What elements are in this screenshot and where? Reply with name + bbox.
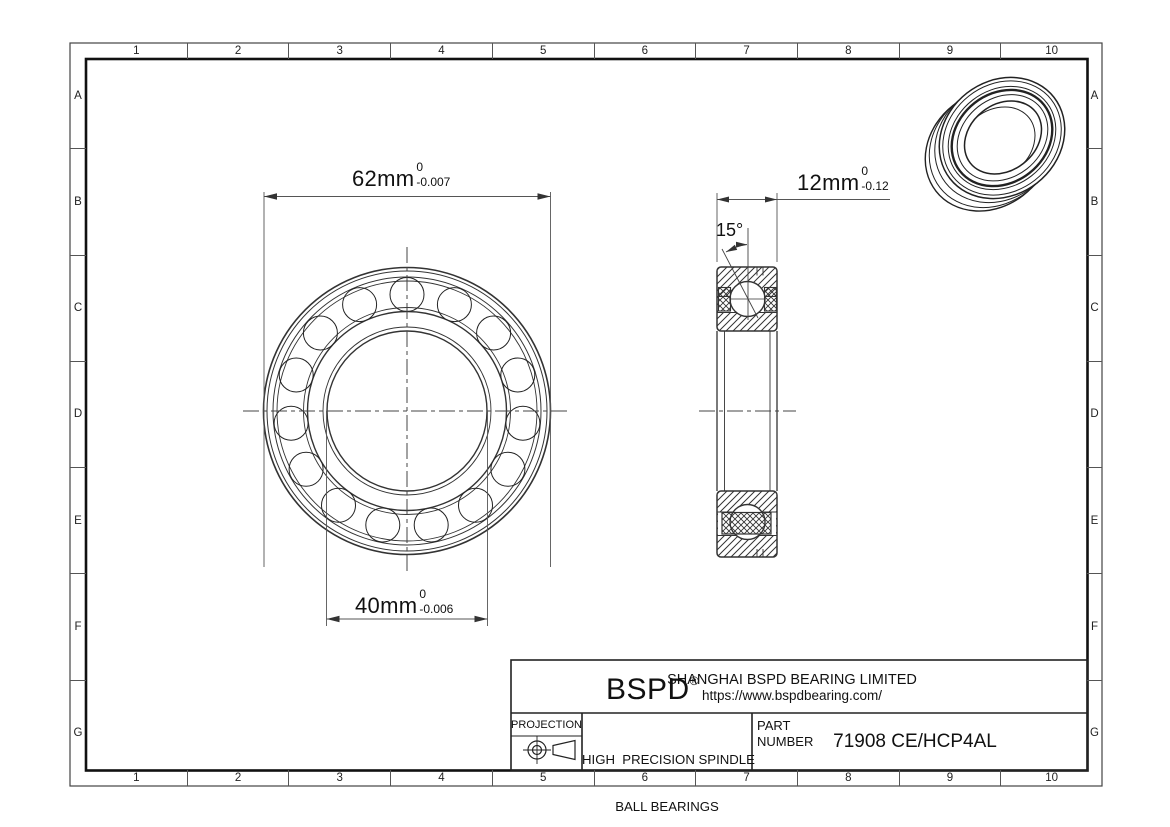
grid-row-label: C bbox=[1087, 256, 1102, 362]
ball-outline bbox=[501, 358, 535, 392]
front-center-lines bbox=[243, 247, 570, 574]
dim-width-tol-upper: 0 bbox=[861, 164, 888, 179]
grid-row-label: A bbox=[1087, 43, 1102, 149]
grid-col-label: 4 bbox=[391, 43, 493, 59]
grid-col-label: 4 bbox=[391, 770, 493, 786]
grid-col-label: 1 bbox=[86, 770, 188, 786]
grid-row-label: D bbox=[70, 362, 86, 468]
grid-col-label: 2 bbox=[188, 770, 290, 786]
grid-col-label: 3 bbox=[289, 770, 391, 786]
dim-outer-tol-upper: 0 bbox=[416, 160, 450, 175]
grid-col-label: 9 bbox=[900, 770, 1002, 786]
grid-col-label: 2 bbox=[188, 43, 290, 59]
grid-col-label: 5 bbox=[493, 43, 595, 59]
grid-row-label: C bbox=[70, 256, 86, 362]
projection-symbol-icon bbox=[523, 736, 575, 764]
grid-row-label: F bbox=[1087, 574, 1102, 680]
ball-outline bbox=[366, 508, 400, 542]
grid-band-left: ABCDEFG bbox=[70, 43, 86, 786]
grid-row-label: E bbox=[1087, 468, 1102, 574]
dim-bore-tol-lower: -0.006 bbox=[419, 602, 453, 617]
grid-col-label: 8 bbox=[798, 43, 900, 59]
ball-outline bbox=[279, 358, 313, 392]
dim-width: 12mm 0 -0.12 bbox=[797, 164, 889, 195]
grid-col-label: 3 bbox=[289, 43, 391, 59]
company-website[interactable]: https://www.bspdbearing.com/ bbox=[660, 688, 924, 703]
grid-row-label: A bbox=[70, 43, 86, 149]
drawing-graphics bbox=[0, 0, 1170, 827]
cage-section-right bbox=[765, 288, 777, 312]
dim-bore-tol-upper: 0 bbox=[419, 587, 453, 602]
product-line-2: BALL BEARINGS bbox=[582, 799, 752, 815]
cage-section-bottom bbox=[722, 513, 771, 535]
grid-row-label: F bbox=[70, 574, 86, 680]
grid-col-label: 1 bbox=[86, 43, 188, 59]
dim-outer-value: 62mm bbox=[352, 160, 414, 190]
grid-row-label: B bbox=[70, 149, 86, 255]
front-view bbox=[243, 247, 570, 574]
product-line-1: HIGH PRECISION SPINDLE bbox=[582, 752, 752, 768]
iso-view bbox=[901, 52, 1089, 236]
grid-col-label: 6 bbox=[595, 43, 697, 59]
cage-section-left bbox=[719, 288, 731, 312]
grid-col-label: 9 bbox=[900, 43, 1002, 59]
grid-row-label: B bbox=[1087, 149, 1102, 255]
dim-width-value: 12mm bbox=[797, 164, 859, 194]
company-name: SHANGHAI BSPD BEARING LIMITED bbox=[660, 672, 924, 688]
dim-bore-value: 40mm bbox=[355, 587, 417, 617]
grid-row-label: G bbox=[1087, 681, 1102, 786]
side-view bbox=[699, 228, 796, 557]
product-description: HIGH PRECISION SPINDLE BALL BEARINGS bbox=[582, 721, 752, 827]
ball-outline bbox=[477, 316, 511, 350]
ball-outline bbox=[414, 508, 448, 542]
grid-col-label: 5 bbox=[493, 770, 595, 786]
grid-band-top: 12345678910 bbox=[86, 43, 1102, 59]
ball-outline bbox=[343, 288, 377, 322]
contact-angle-label: 15° bbox=[716, 220, 743, 241]
ball-outline bbox=[303, 316, 337, 350]
drawing-sheet: 12345678910 12345678910 ABCDEFG ABCDEFG … bbox=[0, 0, 1170, 827]
grid-row-label: D bbox=[1087, 362, 1102, 468]
company-info: SHANGHAI BSPD BEARING LIMITED https://ww… bbox=[660, 672, 924, 703]
grid-band-right: ABCDEFG bbox=[1087, 43, 1102, 786]
grid-row-label: E bbox=[70, 468, 86, 574]
dim-width-tol-lower: -0.12 bbox=[861, 179, 888, 194]
ball-outline bbox=[491, 452, 525, 486]
part-number-value: 71908 CE/HCP4AL bbox=[775, 731, 1055, 753]
projection-label: PROJECTION bbox=[511, 719, 582, 731]
ball-outline bbox=[289, 452, 323, 486]
grid-col-label: 8 bbox=[798, 770, 900, 786]
ball-outline bbox=[437, 288, 471, 322]
dim-bore-diameter: 40mm 0 -0.006 bbox=[355, 587, 453, 618]
dim-outer-diameter: 62mm 0 -0.007 bbox=[352, 160, 450, 191]
dim-outer-tol-lower: -0.007 bbox=[416, 175, 450, 190]
grid-col-label: 7 bbox=[696, 43, 798, 59]
grid-row-label: G bbox=[70, 681, 86, 786]
dimension-lines bbox=[264, 192, 890, 626]
